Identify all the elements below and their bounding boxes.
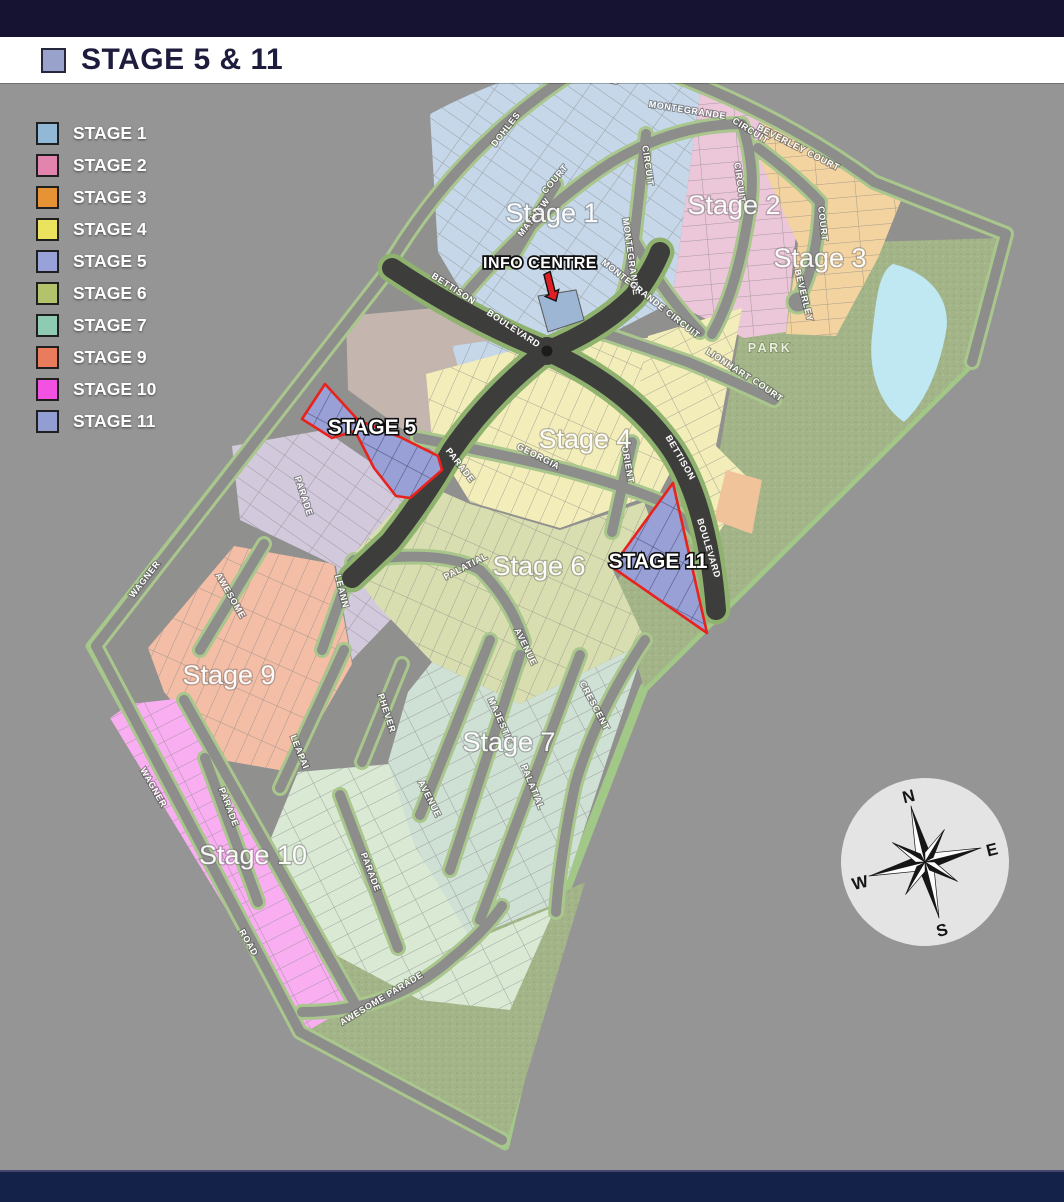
legend-swatch-icon <box>36 346 59 369</box>
roundabout-centre <box>542 346 553 357</box>
legend-label: STAGE 4 <box>73 219 147 240</box>
info-label-info-centre: INFO CENTRE <box>483 255 597 272</box>
stage-label-stage-9: Stage 9 <box>182 660 275 690</box>
legend-label: STAGE 10 <box>73 379 156 400</box>
legend-swatch-icon <box>36 314 59 337</box>
legend-swatch-icon <box>36 122 59 145</box>
legend-swatch-icon <box>36 410 59 433</box>
legend-label: STAGE 2 <box>73 155 147 176</box>
stage-label-stage-1: Stage 1 <box>505 198 598 228</box>
stage-label-stage-4: Stage 4 <box>538 424 631 454</box>
legend-label: STAGE 9 <box>73 347 147 368</box>
legend-item-stage-5: STAGE 5 <box>36 250 156 273</box>
bottom-bar <box>0 1170 1064 1202</box>
legend-swatch-icon <box>36 218 59 241</box>
legend-item-stage-2: STAGE 2 <box>36 154 156 177</box>
stage-label-stage-3: Stage 3 <box>773 243 866 273</box>
stage-label-stage-2: Stage 2 <box>687 190 780 220</box>
legend-item-stage-3: STAGE 3 <box>36 186 156 209</box>
legend-item-stage-1: STAGE 1 <box>36 122 156 145</box>
legend-swatch-icon <box>36 250 59 273</box>
park-label-park: PARK <box>748 341 793 355</box>
legend-item-stage-4: STAGE 4 <box>36 218 156 241</box>
legend-item-stage-7: STAGE 7 <box>36 314 156 337</box>
title-swatch-icon <box>41 48 66 73</box>
legend-label: STAGE 6 <box>73 283 147 304</box>
legend-label: STAGE 5 <box>73 251 147 272</box>
top-bar <box>0 0 1064 37</box>
legend-item-stage-11: STAGE 11 <box>36 410 156 433</box>
legend-item-stage-6: STAGE 6 <box>36 282 156 305</box>
highlight-label-stage-11: STAGE 11 <box>609 550 708 573</box>
compass-rose-icon: N E S W <box>823 760 1027 964</box>
map-svg: N E S W ROCKSDOHLESMONTEGRANDECIRCUITCIR… <box>0 0 1064 1200</box>
legend-item-stage-10: STAGE 10 <box>36 378 156 401</box>
stage-label-stage-6: Stage 6 <box>492 551 585 581</box>
stage-label-stage-10: Stage 10 <box>199 840 307 870</box>
legend-item-stage-9: STAGE 9 <box>36 346 156 369</box>
legend-label: STAGE 7 <box>73 315 147 336</box>
stage-label-stage-7: Stage 7 <box>462 727 555 757</box>
legend: STAGE 1STAGE 2STAGE 3STAGE 4STAGE 5STAGE… <box>36 122 156 442</box>
page-title: STAGE 5 & 11 <box>81 43 283 77</box>
title-banner: STAGE 5 & 11 <box>0 37 1064 83</box>
legend-label: STAGE 11 <box>73 411 155 432</box>
legend-swatch-icon <box>36 154 59 177</box>
legend-label: STAGE 1 <box>73 123 147 144</box>
legend-swatch-icon <box>36 282 59 305</box>
highlight-label-stage-5: STAGE 5 <box>328 416 417 439</box>
legend-swatch-icon <box>36 378 59 401</box>
legend-label: STAGE 3 <box>73 187 147 208</box>
legend-swatch-icon <box>36 186 59 209</box>
